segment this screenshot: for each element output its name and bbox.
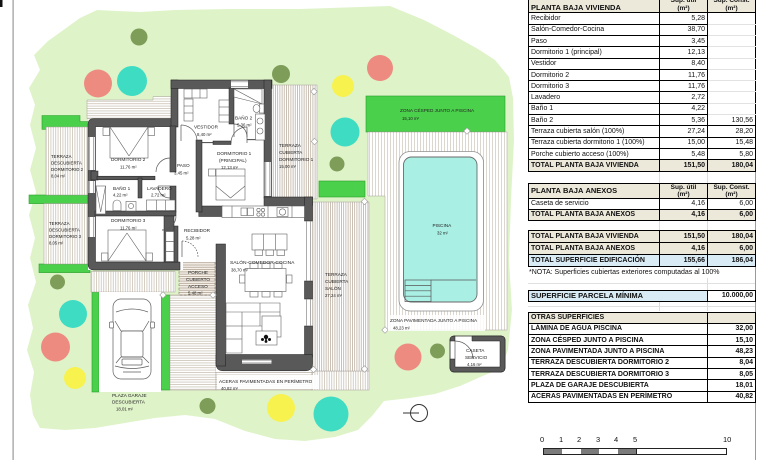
- svg-text:11,76 m²: 11,76 m²: [120, 226, 137, 231]
- svg-text:VESTIDOR: VESTIDOR: [194, 125, 219, 130]
- svg-text:SALÓN: SALÓN: [325, 285, 341, 291]
- svg-text:TERRAZA: TERRAZA: [325, 272, 348, 277]
- svg-text:8,05 m²: 8,05 m²: [49, 241, 64, 246]
- svg-text:DORMITORIO 1: DORMITORIO 1: [279, 157, 314, 162]
- svg-text:48,23 m²: 48,23 m²: [393, 326, 411, 331]
- svg-text:ZONA PAVIMENTADA JUNTO A PISCI: ZONA PAVIMENTADA JUNTO A PISCINA: [390, 318, 478, 323]
- svg-text:BAÑO 2: BAÑO 2: [235, 115, 253, 121]
- svg-text:8,04 m²: 8,04 m²: [51, 174, 66, 179]
- svg-text:DESCUBIERTA: DESCUBIERTA: [112, 400, 146, 405]
- svg-text:5,36 m²: 5,36 m²: [237, 123, 252, 128]
- svg-text:18,01 m²: 18,01 m²: [116, 407, 134, 412]
- svg-text:DORMITORIO 2: DORMITORIO 2: [51, 167, 84, 172]
- svg-text:38,70 m²: 38,70 m²: [231, 268, 249, 273]
- svg-text:ZONA CÉSPED JUNTO A PISCINA: ZONA CÉSPED JUNTO A PISCINA: [400, 107, 475, 113]
- svg-text:RECIBIDOR: RECIBIDOR: [184, 228, 211, 233]
- svg-text:8,40 m²: 8,40 m²: [197, 132, 212, 137]
- svg-text:CUBIERTA: CUBIERTA: [325, 279, 349, 284]
- svg-text:DESCUBIERTA: DESCUBIERTA: [51, 161, 82, 166]
- svg-text:32 m²: 32 m²: [437, 231, 449, 236]
- svg-text:DORMITORIO 3: DORMITORIO 3: [111, 218, 146, 223]
- svg-text:4,16 m²: 4,16 m²: [467, 362, 482, 367]
- svg-text:DORMITORIO 2: DORMITORIO 2: [111, 157, 146, 162]
- svg-text:ACCESO: ACCESO: [188, 284, 208, 289]
- svg-text:PLAZA GARAJE: PLAZA GARAJE: [112, 393, 147, 398]
- svg-text:TERRAZA: TERRAZA: [51, 154, 72, 159]
- svg-text:3,45 m²: 3,45 m²: [174, 171, 189, 176]
- svg-text:CUBIERTA: CUBIERTA: [279, 150, 303, 155]
- svg-text:SALÓN-COMEDOR-COCINA: SALÓN-COMEDOR-COCINA: [230, 259, 295, 266]
- svg-text:40,82 m²: 40,82 m²: [221, 386, 239, 391]
- svg-text:PORCHE: PORCHE: [188, 270, 208, 275]
- svg-text:TERRAZA: TERRAZA: [279, 143, 302, 148]
- svg-text:ACERAS PAVIMENTADAS EN PERÍMET: ACERAS PAVIMENTADAS EN PERÍMETRO: [219, 378, 313, 384]
- svg-text:5,48 m²: 5,48 m²: [188, 291, 203, 296]
- svg-text:15,00 m²: 15,00 m²: [279, 164, 297, 169]
- svg-text:PASO: PASO: [177, 163, 190, 168]
- svg-text:DORMITORIO 3: DORMITORIO 3: [49, 234, 82, 239]
- svg-text:5,28 m²: 5,28 m²: [186, 236, 201, 241]
- svg-text:DORMITORIO 1: DORMITORIO 1: [217, 151, 252, 156]
- svg-text:27,24 m²: 27,24 m²: [325, 293, 343, 298]
- svg-text:11,76 m²: 11,76 m²: [120, 165, 137, 170]
- svg-text:CASETA: CASETA: [466, 348, 485, 353]
- svg-text:2,72 m²: 2,72 m²: [151, 193, 166, 198]
- svg-text:15,10 m²: 15,10 m²: [402, 116, 420, 121]
- svg-text:4,22 m²: 4,22 m²: [113, 193, 128, 198]
- svg-text:LAVADERO: LAVADERO: [147, 186, 172, 191]
- svg-text:(PRINCIPAL): (PRINCIPAL): [219, 158, 247, 163]
- svg-text:12,13 m²: 12,13 m²: [221, 165, 239, 170]
- svg-text:TERRAZA: TERRAZA: [49, 221, 70, 226]
- svg-text:SERVICIO: SERVICIO: [465, 355, 488, 360]
- svg-text:BAÑO 1: BAÑO 1: [113, 185, 131, 191]
- svg-text:PISCINA: PISCINA: [433, 223, 453, 228]
- svg-text:CUBIERTO: CUBIERTO: [186, 277, 210, 282]
- svg-text:DESCUBIERTA: DESCUBIERTA: [49, 228, 80, 233]
